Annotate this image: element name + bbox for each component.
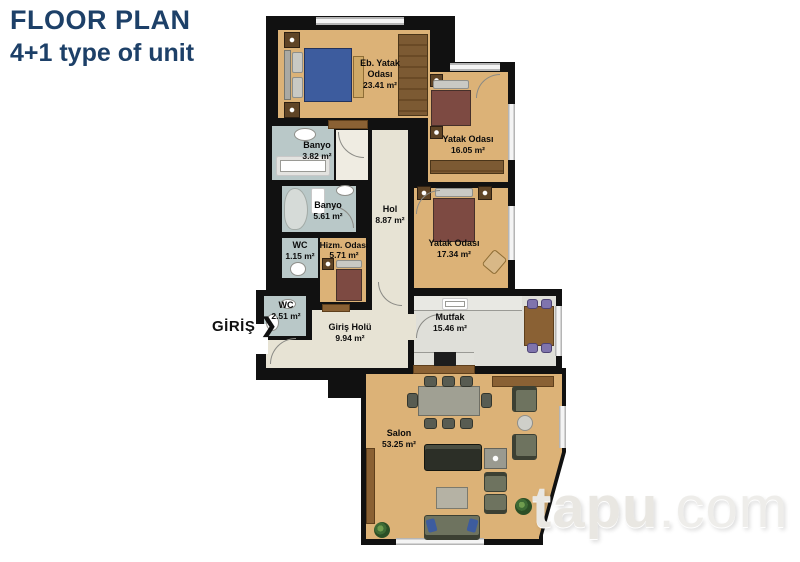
dining-chair <box>407 393 418 408</box>
room-label-bedroom-2: Yatak Odası 16.05 m² <box>430 134 506 155</box>
room-label-entrance-hall: Giriş Holü 9.94 m² <box>306 322 394 343</box>
sofa <box>424 444 482 471</box>
side-table <box>517 415 533 431</box>
room-label-master-bedroom: Eb. Yatak Odası 23.41 m² <box>340 58 420 90</box>
window <box>559 406 566 448</box>
plant <box>515 498 532 515</box>
tv-unit <box>484 448 507 469</box>
watermark: tapu.com <box>532 474 788 541</box>
dining-table <box>418 386 480 416</box>
kitchen-counter <box>414 296 522 311</box>
floor-plan: Eb. Yatak Odası 23.41 m² Yatak Odası 16.… <box>228 8 744 554</box>
kitchen-chair <box>541 343 552 353</box>
room-label-wc-1: WC 1.15 m² <box>282 240 318 261</box>
armchair <box>484 472 507 492</box>
window <box>555 306 562 356</box>
kitchen-doorway <box>408 314 416 340</box>
stove <box>434 352 456 366</box>
bed-pillow <box>292 77 303 98</box>
dining-chair <box>442 418 455 429</box>
armchair <box>512 386 537 412</box>
toilet <box>290 262 306 276</box>
watermark-name: tapu <box>532 475 658 540</box>
kitchen-sink <box>442 298 468 310</box>
room-label-bathroom-2: Banyo 5.61 m² <box>300 200 356 221</box>
bed-pillow <box>292 52 303 73</box>
nightstand <box>284 32 300 48</box>
room-label-bathroom-1: Banyo 3.82 m² <box>286 140 348 161</box>
kitchen-chair <box>527 343 538 353</box>
doormat <box>413 365 475 374</box>
single-bed <box>336 269 362 301</box>
window <box>316 17 404 25</box>
armchair <box>512 434 537 460</box>
kitchen-table <box>524 306 554 346</box>
bed <box>431 90 471 126</box>
dining-chair <box>460 418 473 429</box>
dining-chair <box>460 376 473 387</box>
nightstand <box>284 102 300 118</box>
room-label-service-room: Hizm. Odası 5.71 m² <box>318 240 370 261</box>
kitchen-chair <box>527 299 538 309</box>
room-label-bedroom-3: Yatak Odası 17.34 m² <box>422 238 486 259</box>
coffee-table <box>436 487 468 509</box>
room-label-living-room: Salon 53.25 m² <box>368 428 430 449</box>
room-label-kitchen: Mutfak 15.46 m² <box>418 312 482 333</box>
window <box>508 206 515 260</box>
window <box>450 63 500 71</box>
entrance-label: GİRİŞ ❯ <box>212 316 277 336</box>
dining-chair <box>424 376 437 387</box>
sink <box>336 185 354 196</box>
entrance-text: GİRİŞ <box>212 318 255 335</box>
room-label-hall: Hol 8.87 m² <box>372 204 408 225</box>
plant <box>374 522 390 538</box>
title-line2: 4+1 type of unit <box>10 38 194 69</box>
entrance-arrow-icon: ❯ <box>260 316 277 336</box>
nightstand <box>478 186 492 200</box>
bed-pillow <box>433 80 469 89</box>
page-title: FLOOR PLAN 4+1 type of unit <box>10 4 194 69</box>
title-line1: FLOOR PLAN <box>10 4 194 38</box>
bed-pillow <box>336 260 362 268</box>
wardrobe <box>430 160 504 174</box>
window <box>508 104 515 160</box>
doormat <box>322 304 350 312</box>
bed-pillow <box>435 188 473 197</box>
dining-chair <box>481 393 492 408</box>
dining-chair <box>442 376 455 387</box>
rug <box>366 448 375 524</box>
armchair <box>484 494 507 514</box>
kitchen-chair <box>541 299 552 309</box>
watermark-tld: .com <box>658 475 788 540</box>
doormat <box>328 120 368 129</box>
headboard <box>284 50 291 100</box>
